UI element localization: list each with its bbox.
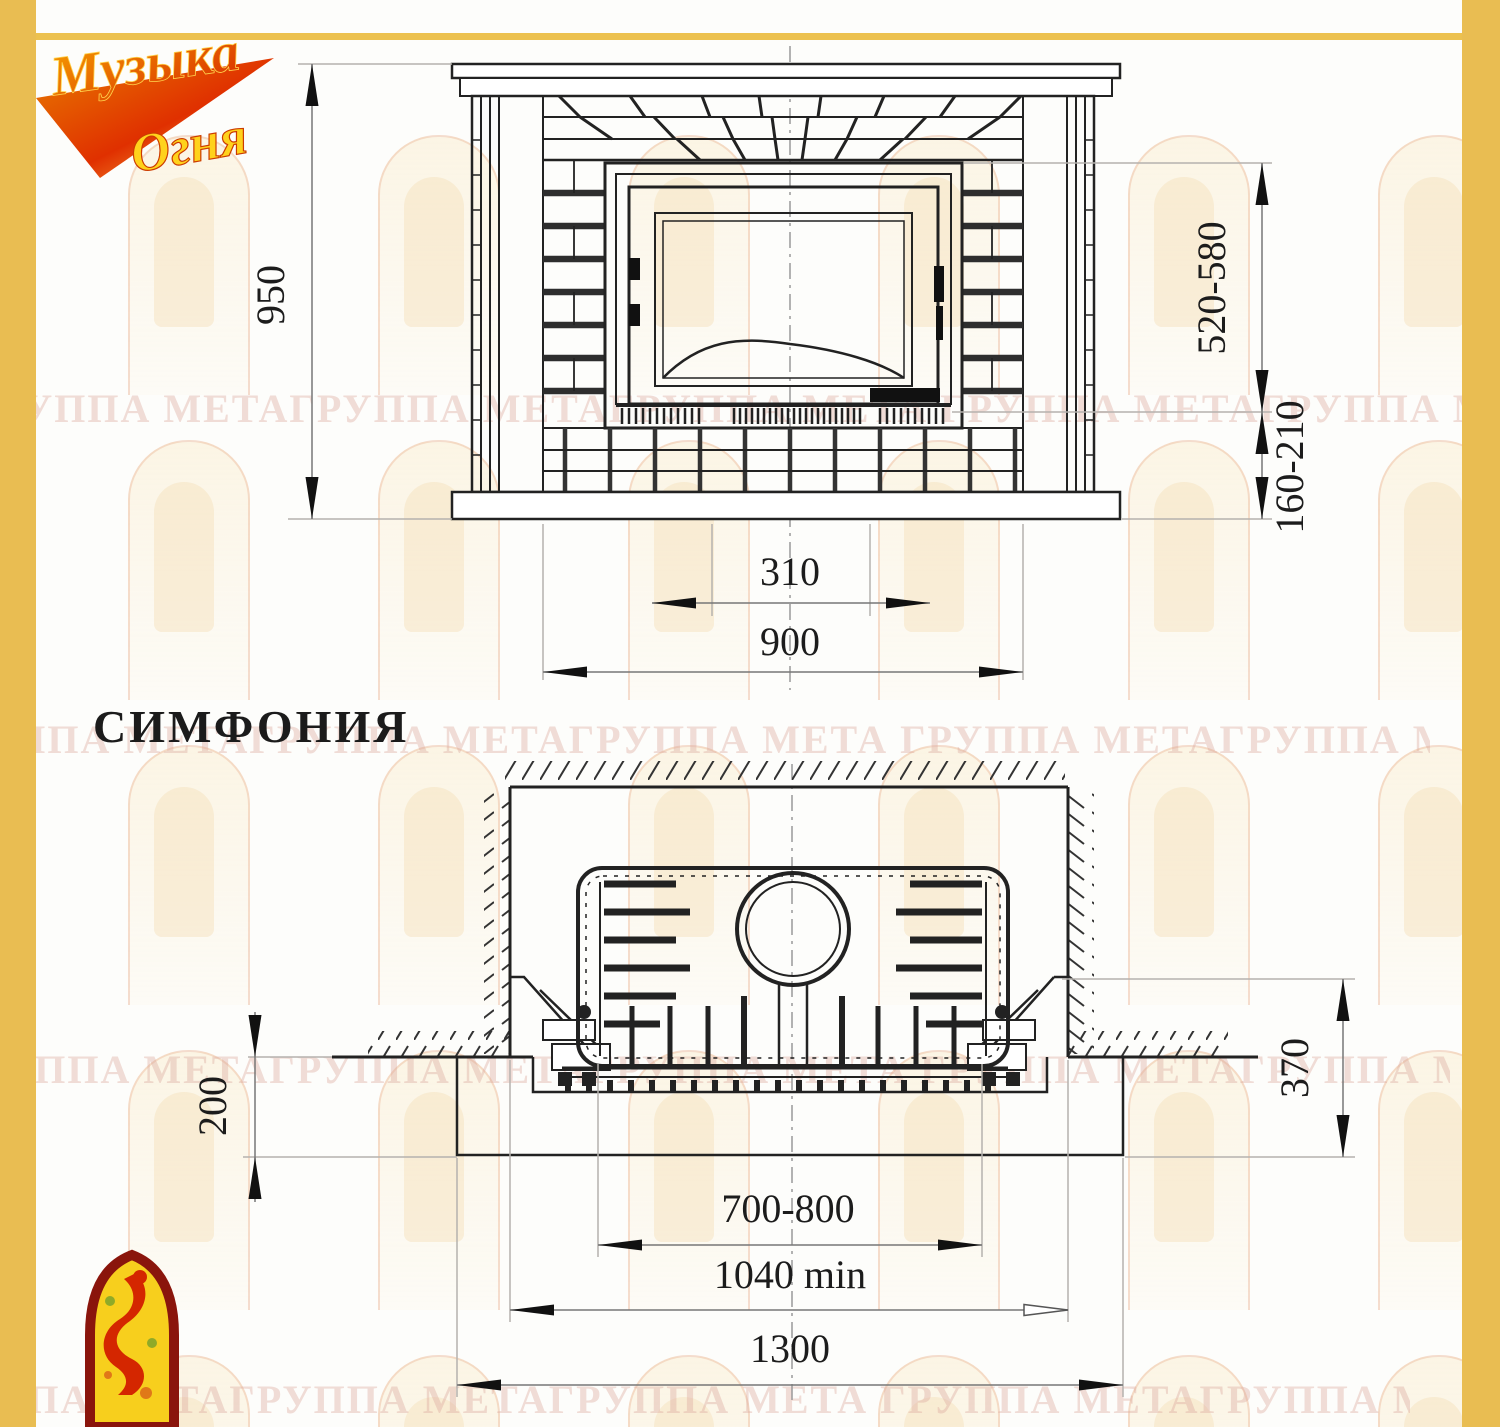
dim-grate-width: 310 <box>760 549 820 594</box>
dim-slab-front: 200 <box>190 1076 235 1136</box>
dim-firebox-height: 520-580 <box>1189 221 1234 354</box>
page: ГРУППА МЕТАГРУППА МЕТАГРУППА МЕТА ГРУППА… <box>0 0 1500 1427</box>
dim-total-height: 950 <box>248 265 293 325</box>
right-gold-border <box>1462 0 1500 1427</box>
dim-body-width: 900 <box>760 619 820 664</box>
front-view-dimensions: 950 520-580 160-210 310 900 <box>248 64 1312 680</box>
arch-flame-emblem-icon <box>80 1243 184 1427</box>
dim-portal-depth: 370 <box>1272 1038 1317 1098</box>
brand-logo: Музыка Огня <box>22 2 312 202</box>
plan-view-drawing <box>332 761 1258 1404</box>
dim-opening-width: 700-800 <box>721 1186 854 1231</box>
model-title: СИМФОНИЯ <box>93 700 409 753</box>
dim-niche-width: 1040 min <box>714 1252 866 1297</box>
dim-slab-width: 1300 <box>750 1326 830 1371</box>
left-gold-border <box>0 0 36 1427</box>
dim-hearth-height: 160-210 <box>1267 400 1312 533</box>
